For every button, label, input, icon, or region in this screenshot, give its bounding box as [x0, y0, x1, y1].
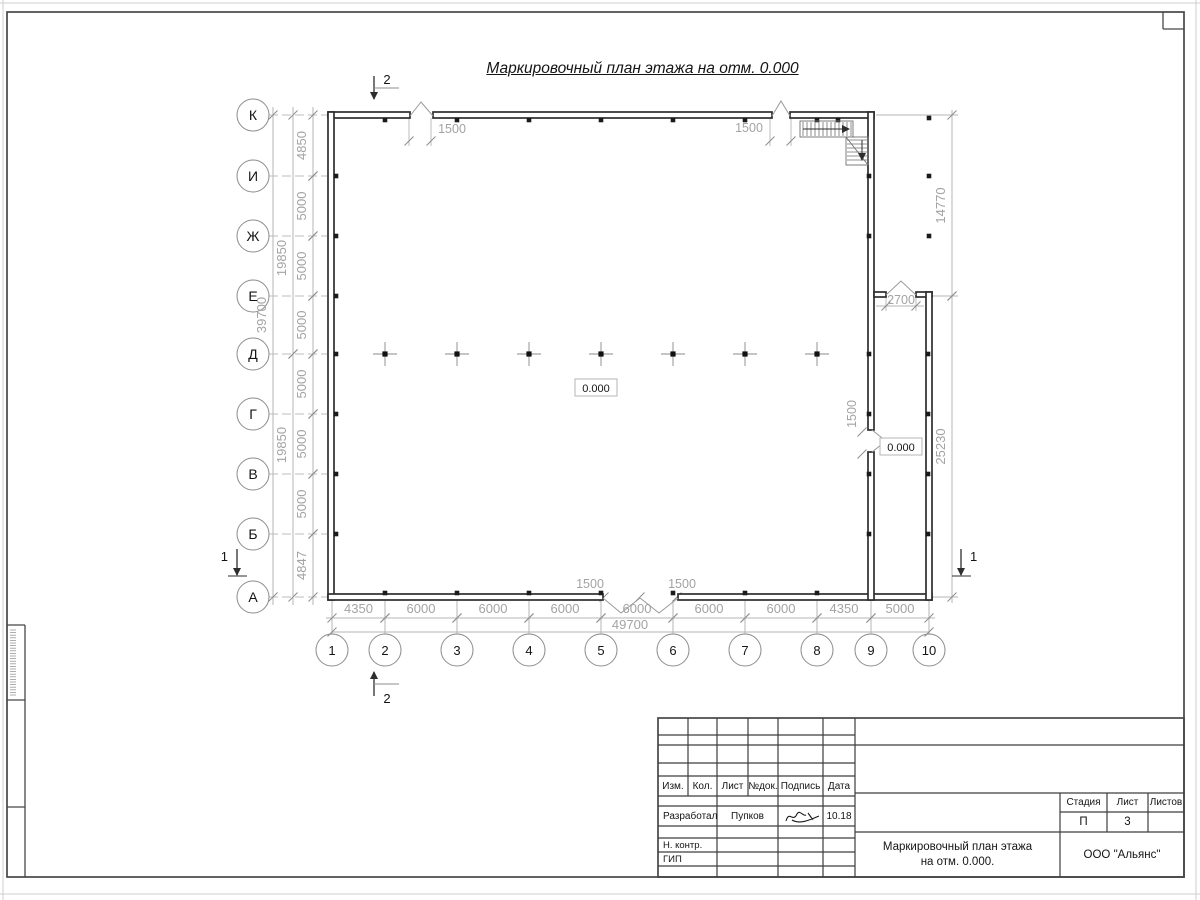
column-mark — [743, 118, 748, 123]
dim-label: 6000 — [695, 601, 724, 616]
column-mark — [334, 412, 339, 417]
axis-label: 1 — [328, 643, 335, 658]
dim-label: 5000 — [294, 490, 309, 519]
signature-icon — [782, 808, 822, 826]
floor-plan-canvas: КИЖЕДГВБА1234567891048505000500050005000… — [0, 0, 1200, 900]
column-mark — [926, 412, 931, 417]
plan-title: Маркировочный план этажа на отм. 0.000 — [420, 60, 865, 78]
dim-label: 5000 — [294, 430, 309, 459]
dim-label: 6000 — [479, 601, 508, 616]
column-mark — [334, 294, 339, 299]
wall — [790, 112, 874, 118]
tb-stage-value: П — [1060, 812, 1107, 832]
column-mark — [867, 352, 872, 357]
wall — [874, 292, 886, 297]
elevation-label: 0.000 — [887, 442, 915, 454]
tb-header-izm: Изм. — [658, 776, 688, 796]
axis-label: А — [248, 589, 258, 605]
tb-header-list: Лист — [717, 776, 748, 796]
dim-label: 1500 — [735, 121, 763, 135]
tb-header-data: Дата — [823, 776, 855, 796]
tb-role-developer: Разработал — [660, 806, 720, 826]
section-label: 1 — [221, 549, 228, 564]
dim-label: 4847 — [294, 551, 309, 580]
column-mark — [455, 591, 460, 596]
column-mark — [599, 591, 604, 596]
interior-column — [454, 351, 459, 356]
column-mark — [926, 532, 931, 537]
dim-label: 1500 — [438, 122, 466, 136]
dim-label: 5000 — [294, 192, 309, 221]
tb-developer-name: Пупков — [717, 806, 778, 826]
column-mark — [927, 234, 932, 239]
interior-column — [670, 351, 675, 356]
dim-label: 5000 — [886, 601, 915, 616]
dim-label: 4350 — [344, 601, 373, 616]
column-mark — [671, 118, 676, 123]
tb-sheet-label: Лист — [1107, 793, 1148, 812]
tb-role-ncontrol: Н. контр. — [660, 838, 720, 852]
dim-label: 4350 — [830, 601, 859, 616]
arrowhead — [370, 671, 378, 679]
dim-label: 5000 — [294, 370, 309, 399]
arrowhead — [233, 568, 241, 576]
dim-label: 2700 — [887, 293, 915, 307]
dim-label: 14770 — [933, 187, 948, 223]
axis-label: 10 — [922, 643, 936, 658]
interior-column — [526, 351, 531, 356]
column-mark — [334, 532, 339, 537]
column-mark — [927, 174, 932, 179]
axis-label: Б — [248, 526, 257, 542]
tb-date-value: 10.18 — [823, 806, 855, 826]
tb-doc-title: Маркировочный план этажа на отм. 0.000. — [857, 832, 1058, 877]
dim-label: 6000 — [551, 601, 580, 616]
column-mark — [867, 532, 872, 537]
tb-header-ndok: №док. — [748, 776, 778, 796]
drawing-sheet: КИЖЕДГВБА1234567891048505000500050005000… — [0, 0, 1200, 900]
wall — [433, 112, 772, 118]
arrowhead — [842, 125, 850, 133]
section-label: 1 — [970, 549, 977, 564]
arrowhead — [370, 92, 378, 100]
column-mark — [671, 591, 676, 596]
axis-label: 9 — [867, 643, 874, 658]
tb-doc-title-line1: Маркировочный план этажа — [883, 840, 1032, 855]
column-mark — [815, 118, 820, 123]
wall — [926, 292, 932, 600]
axis-label: Ж — [247, 228, 260, 244]
dim-label: 5000 — [294, 252, 309, 281]
frame-border — [7, 12, 1184, 877]
column-mark — [927, 116, 932, 121]
axis-label: 8 — [813, 643, 820, 658]
column-mark — [867, 412, 872, 417]
column-mark — [334, 234, 339, 239]
axis-label: Д — [248, 346, 258, 362]
wall — [328, 112, 410, 118]
column-mark — [383, 591, 388, 596]
axis-label: 7 — [741, 643, 748, 658]
dim-label: 19850 — [274, 427, 289, 463]
interior-column — [742, 351, 747, 356]
column-mark — [334, 174, 339, 179]
dim-label: 6000 — [767, 601, 796, 616]
tb-header-podpis: Подпись — [778, 776, 823, 796]
column-mark — [836, 118, 841, 123]
axis-label: 5 — [597, 643, 604, 658]
wall — [328, 594, 603, 600]
column-mark — [383, 118, 388, 123]
tb-role-gip: ГИП — [660, 852, 720, 866]
column-mark — [599, 118, 604, 123]
tb-sheet-value: 3 — [1107, 812, 1148, 832]
column-mark — [926, 472, 931, 477]
column-mark — [867, 234, 872, 239]
dim-label: 1500 — [668, 577, 696, 591]
dim-label: 4850 — [294, 131, 309, 160]
column-mark — [455, 118, 460, 123]
dim-label: 5000 — [294, 311, 309, 340]
column-mark — [527, 118, 532, 123]
tb-header-kol: Кол. — [688, 776, 717, 796]
axis-label: 2 — [381, 643, 388, 658]
column-mark — [334, 472, 339, 477]
dim-label: 49700 — [612, 617, 648, 632]
dim-label: 39700 — [254, 297, 269, 333]
tb-organization: ООО "Альянс" — [1060, 832, 1184, 877]
column-mark — [815, 591, 820, 596]
column-mark — [743, 591, 748, 596]
elevation-label: 0.000 — [582, 383, 610, 395]
column-mark — [867, 472, 872, 477]
section-label: 2 — [383, 72, 390, 87]
dim-tick — [858, 450, 867, 459]
column-mark — [334, 352, 339, 357]
door-opening-symbol — [772, 101, 790, 116]
interior-column — [382, 351, 387, 356]
column-mark — [527, 591, 532, 596]
axis-label: И — [248, 168, 258, 184]
axis-label: Г — [249, 406, 257, 422]
dim-label: 1500 — [576, 577, 604, 591]
column-mark — [926, 352, 931, 357]
interior-column — [598, 351, 603, 356]
section-label: 2 — [383, 691, 390, 706]
tb-sheets-label: Листов — [1148, 793, 1184, 812]
column-mark — [867, 174, 872, 179]
interior-column — [814, 351, 819, 356]
arrowhead — [957, 568, 965, 576]
tb-stage-label: Стадия — [1060, 793, 1107, 812]
wall — [868, 112, 874, 430]
wall — [678, 594, 932, 600]
dim-label: 6000 — [407, 601, 436, 616]
axis-label: 4 — [525, 643, 532, 658]
door-opening-symbol — [410, 102, 433, 116]
dim-label: 1500 — [845, 400, 859, 428]
wall — [328, 112, 334, 600]
stairs-cut — [846, 137, 868, 165]
axis-label: 3 — [453, 643, 460, 658]
dim-label: 25230 — [933, 428, 948, 464]
axis-label: В — [248, 466, 257, 482]
axis-label: К — [249, 107, 258, 123]
dim-label: 19850 — [274, 240, 289, 276]
axis-label: 6 — [669, 643, 676, 658]
tb-doc-title-line2: на отм. 0.000. — [921, 855, 995, 870]
